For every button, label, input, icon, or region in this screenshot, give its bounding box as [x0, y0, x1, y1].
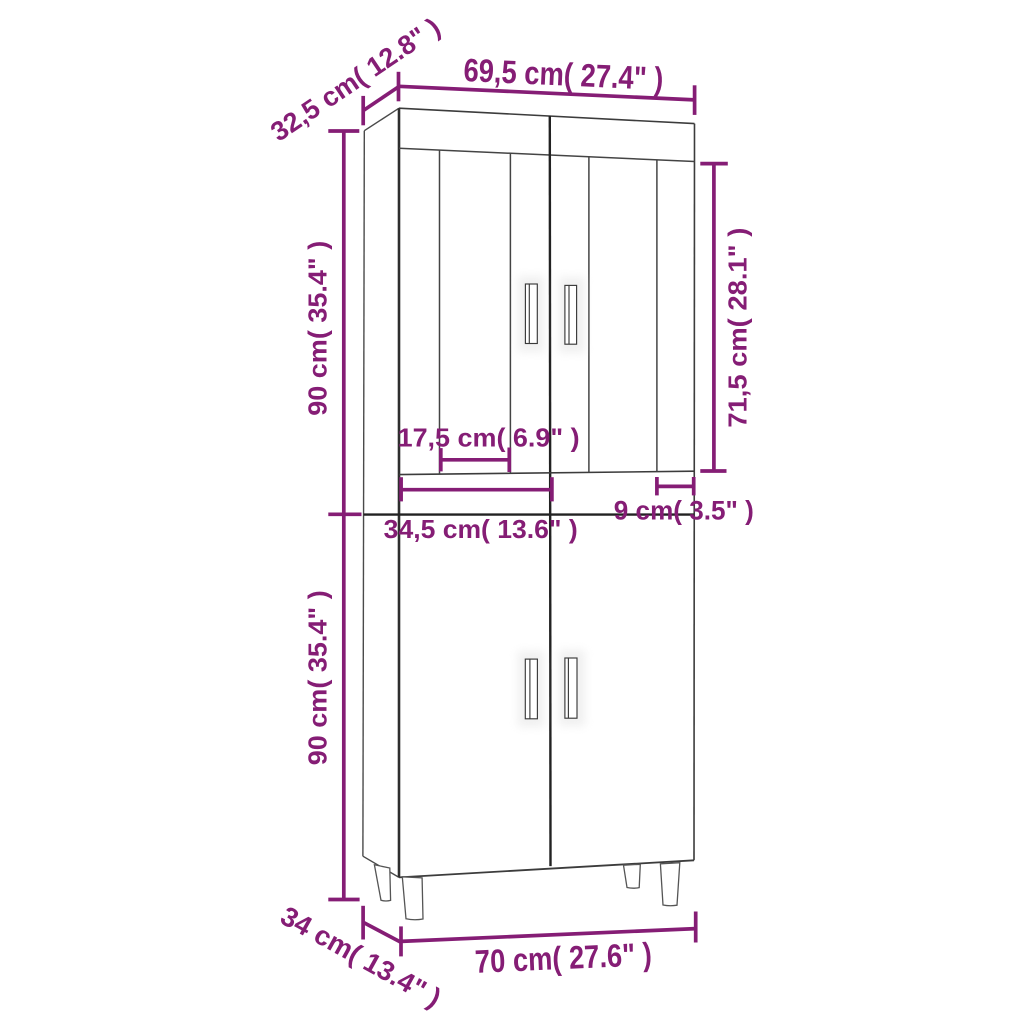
svg-text:34,5 cm( 13.6" ): 34,5 cm( 13.6" ) — [384, 514, 578, 544]
svg-text:17,5 cm( 6.9" ): 17,5 cm( 6.9" ) — [398, 423, 580, 453]
svg-text:71,5 cm( 28.1" ): 71,5 cm( 28.1" ) — [723, 228, 753, 428]
svg-text:90 cm( 35.4" ): 90 cm( 35.4" ) — [303, 590, 333, 765]
svg-text:9 cm( 3.5" ): 9 cm( 3.5" ) — [614, 496, 754, 526]
svg-text:70 cm( 27.6" ): 70 cm( 27.6" ) — [474, 936, 652, 980]
svg-text:90 cm( 35.4" ): 90 cm( 35.4" ) — [303, 241, 333, 416]
